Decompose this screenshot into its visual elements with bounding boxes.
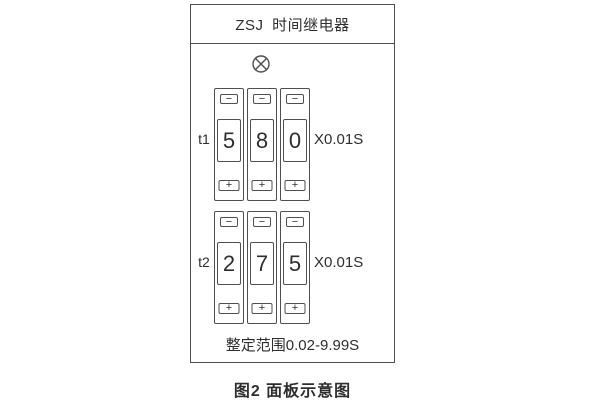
digit-display: 7 — [250, 242, 274, 285]
decrement-button[interactable]: − — [220, 217, 238, 227]
increment-button[interactable]: + — [285, 303, 306, 314]
digit-display: 5 — [217, 119, 241, 162]
digit-wheels-t1: − 5 + − 8 + − 0 + — [214, 88, 310, 201]
figure-panel-schematic: ZSJ 时间继电器 t1 − 5 + − 8 + − — [0, 0, 600, 400]
digit-display: 8 — [250, 119, 274, 162]
increment-button[interactable]: + — [285, 180, 306, 191]
digit-wheel-t1-units: − 0 + — [280, 88, 310, 201]
increment-button[interactable]: + — [252, 180, 273, 191]
digit-wheel-t2-units: − 5 + — [280, 211, 310, 324]
decrement-button[interactable]: − — [253, 217, 271, 227]
setting-range-label: 整定范围0.02-9.99S — [191, 334, 394, 355]
decrement-button[interactable]: − — [286, 94, 304, 104]
decrement-button[interactable]: − — [220, 94, 238, 104]
multiplier-label-t2: X0.01S — [314, 254, 363, 271]
digit-wheels-t2: − 2 + − 7 + − 5 + — [214, 211, 310, 324]
increment-button[interactable]: + — [219, 303, 240, 314]
figure-caption: 图2 面板示意图 — [190, 377, 395, 400]
digit-wheel-t2-tens: − 7 + — [247, 211, 277, 324]
decrement-button[interactable]: − — [286, 217, 304, 227]
increment-button[interactable]: + — [219, 180, 240, 191]
digit-display: 0 — [283, 119, 307, 162]
digit-display: 2 — [217, 242, 241, 285]
decrement-button[interactable]: − — [253, 94, 271, 104]
digit-display: 5 — [283, 242, 307, 285]
increment-button[interactable]: + — [252, 303, 273, 314]
relay-front-panel: ZSJ 时间继电器 t1 − 5 + − 8 + − — [190, 4, 395, 363]
digit-wheel-t2-hundreds: − 2 + — [214, 211, 244, 324]
timer-group-t1: t1 − 5 + − 8 + − 0 + X0.01S — [191, 88, 394, 201]
multiplier-label-t1: X0.01S — [314, 131, 363, 148]
panel-title: ZSJ 时间继电器 — [191, 5, 394, 44]
digit-wheel-t1-tens: − 8 + — [247, 88, 277, 201]
timer-t1-label: t1 — [194, 131, 214, 147]
digit-wheel-t1-hundreds: − 5 + — [214, 88, 244, 201]
indicator-lamp-icon — [251, 54, 271, 74]
timer-group-t2: t2 − 2 + − 7 + − 5 + X0.01S — [191, 211, 394, 324]
timer-t2-label: t2 — [194, 254, 214, 270]
